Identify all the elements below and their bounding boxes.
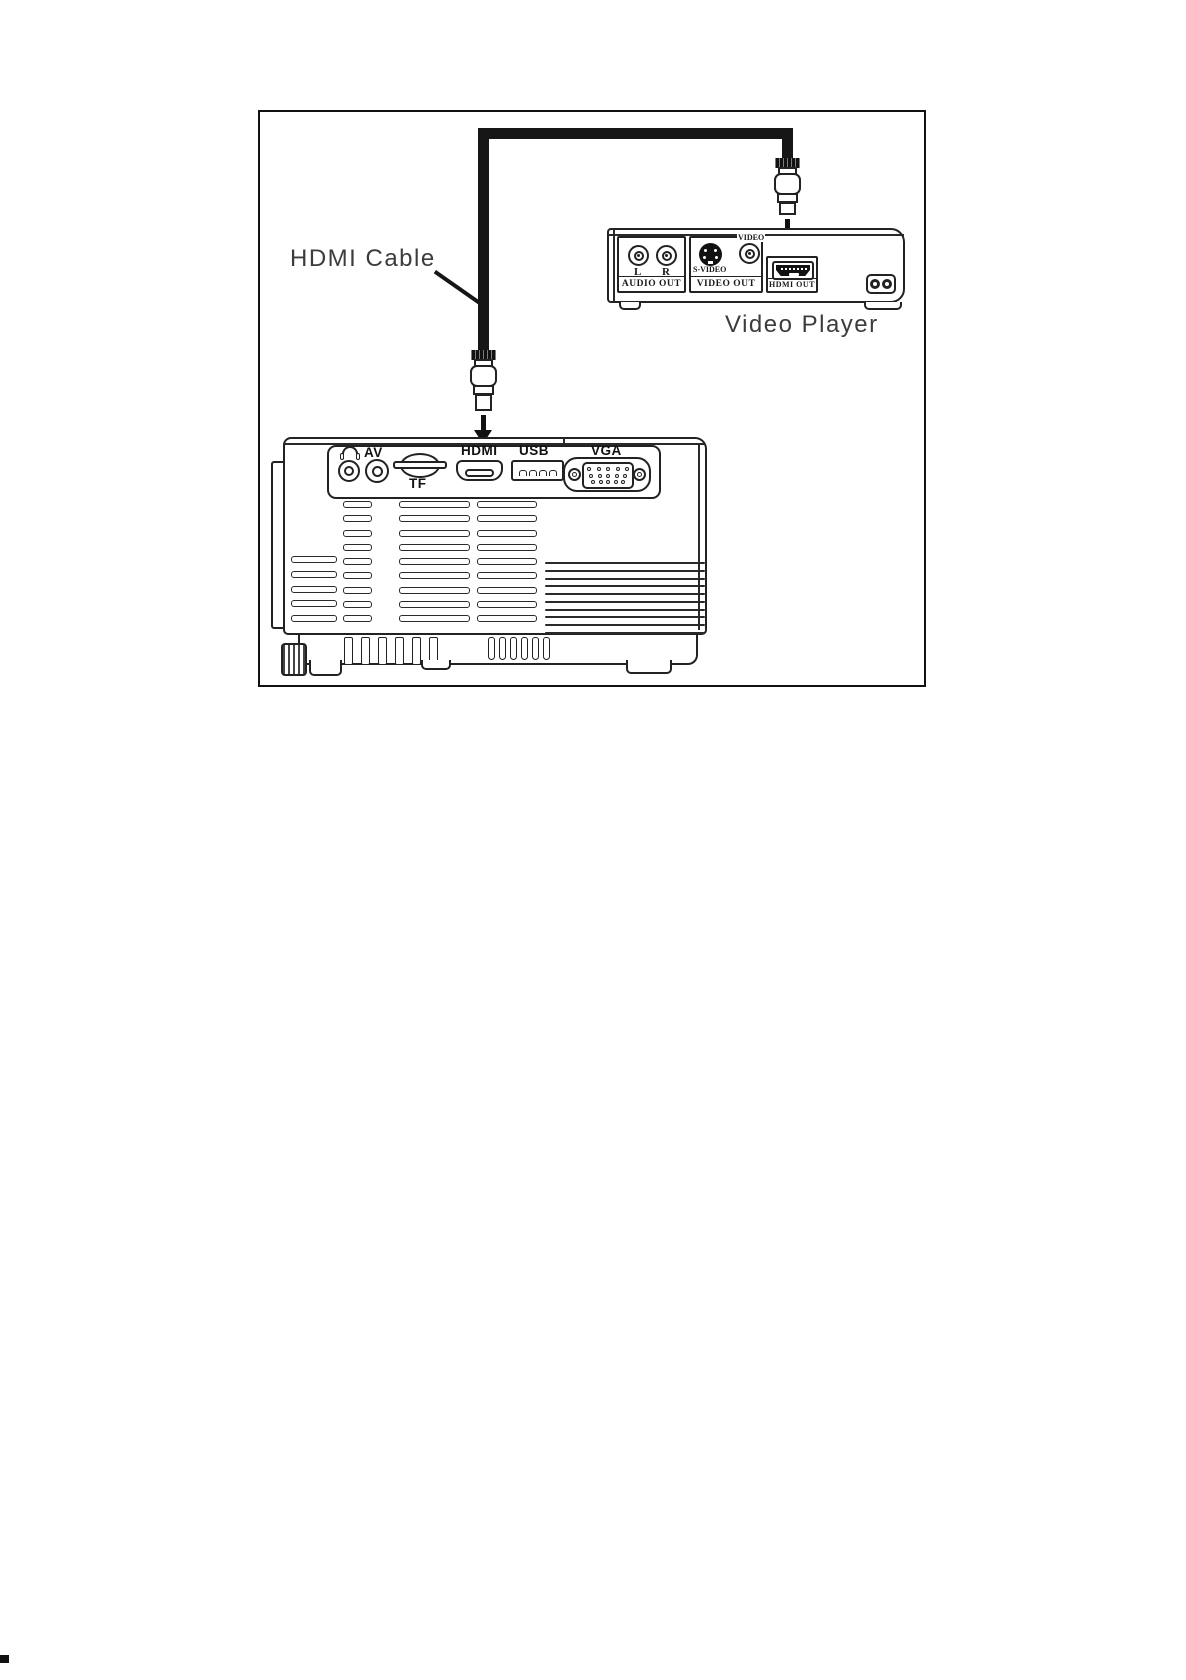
combslat: [378, 637, 387, 665]
usb-port-icon: [511, 460, 564, 481]
gline: [545, 609, 705, 611]
hdmi-port-icon: [456, 460, 503, 481]
headphone-icon: [339, 446, 361, 460]
tf-card-slot-bar: [393, 461, 447, 469]
vent-column-1: [343, 501, 372, 622]
vga-port-label: VGA: [591, 443, 622, 458]
player-left-edge-line: [613, 229, 615, 302]
projector-foot-center: [421, 660, 451, 670]
oval: [521, 637, 528, 660]
gline: [545, 616, 705, 618]
s-video-connector-icon: [699, 243, 722, 266]
combslat: [395, 637, 404, 665]
gline: [545, 585, 705, 587]
combslat: [361, 637, 370, 665]
slat: [291, 571, 337, 578]
manual-page: HDMI Cable L R AUDIO OUT: [0, 0, 1186, 1680]
slat: [343, 515, 372, 522]
gline: [545, 632, 705, 634]
slat: [399, 501, 470, 508]
slat: [343, 615, 372, 622]
slat: [477, 544, 537, 551]
slat: [399, 530, 470, 537]
s-video-label: S-VIDEO: [693, 265, 726, 274]
player-foot-left: [619, 302, 641, 310]
video-out-label: VIDEO OUT: [691, 276, 761, 291]
slat: [399, 544, 470, 551]
rca-jack-video: [739, 243, 760, 264]
gline: [545, 601, 705, 603]
slat: [399, 601, 470, 608]
slat: [399, 615, 470, 622]
projector-foot-left: [309, 660, 342, 676]
gline: [545, 593, 705, 595]
video-out-section: S-VIDEO VIDEO VIDEO OUT: [689, 236, 763, 293]
slat: [343, 572, 372, 579]
vga-port-icon: [563, 457, 651, 492]
tf-port-label: TF: [409, 476, 427, 491]
power-inlet-icon: [866, 274, 896, 294]
slat: [291, 586, 337, 593]
oval: [510, 637, 517, 660]
vent-column-3: [477, 501, 537, 622]
rca-jack-left: [628, 245, 649, 266]
slat: [477, 501, 537, 508]
slat: [477, 572, 537, 579]
gline: [545, 624, 705, 626]
gline: [545, 570, 705, 572]
hdmi-cable-horizontal: [478, 128, 793, 139]
projector-foot-right: [626, 660, 672, 674]
slat: [399, 558, 470, 565]
focus-wheel-icon: [281, 643, 307, 676]
projector-top-seam: [563, 438, 565, 445]
slat: [477, 587, 537, 594]
slat: [291, 600, 337, 607]
slat: [477, 601, 537, 608]
slat: [477, 615, 537, 622]
slat: [399, 572, 470, 579]
vent-column-2: [399, 501, 470, 622]
gline: [545, 562, 705, 564]
bottom-vent-ovals: [488, 637, 550, 660]
combslat: [412, 637, 421, 665]
usb-port-label: USB: [519, 443, 549, 458]
hdmi-out-label: HDMI OUT: [768, 278, 816, 291]
oval: [488, 637, 495, 660]
slat: [399, 515, 470, 522]
slat: [291, 556, 337, 563]
hdmi-cable-left-drop: [478, 128, 489, 352]
av-port-label: AV: [364, 445, 383, 460]
oval: [543, 637, 550, 660]
hdmi-cable-right-drop: [782, 128, 793, 162]
slat: [343, 587, 372, 594]
gline: [545, 578, 705, 580]
av-jack: [365, 459, 389, 483]
arrow-down-icon: [481, 415, 486, 431]
slat: [343, 558, 372, 565]
combslat: [344, 637, 353, 665]
video-jack-label: VIDEO: [737, 233, 765, 242]
slat: [343, 501, 372, 508]
slat: [343, 544, 372, 551]
oval: [532, 637, 539, 660]
oval: [499, 637, 506, 660]
slat: [343, 601, 372, 608]
audio-out-label: AUDIO OUT: [619, 276, 684, 291]
rca-jack-right: [656, 245, 677, 266]
headphone-jack: [338, 460, 360, 482]
video-player-label: Video Player: [725, 311, 879, 339]
player-foot-right: [864, 302, 902, 310]
slat: [477, 558, 537, 565]
slat: [343, 530, 372, 537]
slat: [477, 530, 537, 537]
slat: [291, 615, 337, 622]
audio-out-section: L R AUDIO OUT: [617, 236, 686, 293]
hdmi-cable-label: HDMI Cable: [290, 245, 436, 273]
side-grille: [545, 562, 705, 634]
slat: [399, 587, 470, 594]
page-edge-mark: [0, 1655, 9, 1663]
slat: [477, 515, 537, 522]
vent-column-far-left: [291, 556, 337, 622]
hdmi-port-label: HDMI: [461, 443, 498, 458]
hdmi-out-section: HDMI OUT: [766, 256, 818, 293]
